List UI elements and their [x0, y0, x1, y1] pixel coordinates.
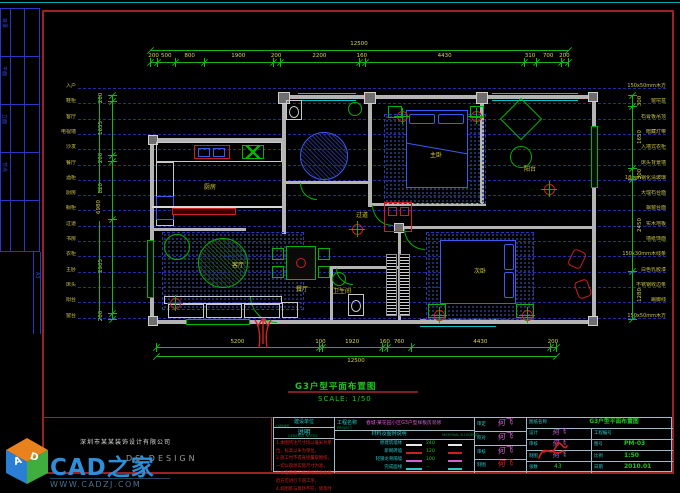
plan-title-underline [288, 391, 418, 393]
sprinkler-icon [434, 310, 445, 321]
sig-label: 审定 [477, 422, 495, 428]
dim-ext [273, 58, 274, 67]
dim-value: 2200 [299, 53, 339, 59]
room-label: 阳台 [524, 166, 536, 173]
dim-value: 4430 [460, 339, 500, 345]
legend-swatch [406, 452, 422, 454]
dining-chair [272, 266, 284, 278]
sig-label: 审核 [477, 450, 495, 456]
drawing-frame [42, 10, 674, 474]
dim-ext [524, 58, 525, 67]
cadzj-logo[interactable]: A D CAD之家 WWW.CADZJ.COM [6, 434, 206, 492]
legend-swatch [448, 444, 462, 446]
info-label: 日期 [594, 465, 622, 471]
projection-line [78, 134, 666, 135]
sprinkler-icon [522, 310, 533, 321]
legend-swatch [448, 460, 462, 462]
info-value: 2010.01 [624, 464, 670, 470]
window [186, 319, 250, 325]
left-table-line [24, 8, 25, 252]
dining-chair [318, 266, 330, 278]
dim-ext [628, 319, 637, 320]
room-label: 主卧 [430, 152, 442, 159]
sofa-seat [206, 304, 242, 318]
sig-label: 校对 [477, 436, 495, 442]
sprinkler-icon [544, 184, 555, 195]
legend-value: -- [426, 465, 444, 471]
top-rule-line [0, 2, 680, 3]
left-index-label: 目录 [1, 18, 8, 28]
dim-value: 1650 [637, 125, 643, 149]
projection-label-right: 入墙式衣柜 [596, 144, 666, 151]
projection-label-right: 床头背景墙 [596, 160, 666, 167]
projection-label-right: 150x30mm木线条 [596, 251, 666, 258]
dim-line [632, 95, 633, 319]
dining-chair [272, 248, 284, 260]
info-label: 张数 [529, 465, 549, 471]
drawing-name-value: G3户型平面布置图 [556, 419, 672, 425]
column-pier [588, 316, 598, 326]
legend-swatch [448, 468, 462, 470]
pillow [438, 114, 464, 124]
dim-value: 160 [342, 53, 382, 59]
cad-drawing-canvas: 目录平面立面节点A3 入户150x50mm木方鞋柜窗帘盒客厅石膏板吊顶电视墙暗藏… [0, 0, 680, 493]
projection-label-left: 入户 [42, 83, 76, 90]
projection-label-right: 窗帘盒 [596, 98, 666, 105]
window [591, 126, 598, 188]
notes-sub: GENERAL NOTES [288, 434, 317, 438]
basin [332, 272, 346, 286]
dim-value: 300 [637, 89, 643, 113]
wall [368, 95, 372, 207]
projection-label-left: 酒柜 [42, 175, 76, 182]
info-label: 工程编号 [594, 431, 622, 437]
drawing-name-label: 图纸名称 [529, 420, 547, 426]
dim-ext [628, 179, 637, 180]
tv-cabinet [172, 208, 236, 215]
logo-website[interactable]: WWW.CADZJ.COM [50, 478, 170, 489]
column-pier [364, 92, 376, 104]
dim-ext [157, 58, 158, 67]
window [492, 93, 578, 101]
projection-label-left: 窗台 [42, 313, 76, 320]
signature: 何飞 [497, 433, 514, 441]
projection-label-left: 过道 [42, 221, 76, 228]
column-pier [588, 92, 598, 102]
legend-name: 新砌砖墙 [336, 449, 402, 455]
dim-value: 1900 [218, 53, 258, 59]
left-strip-label: A3 [34, 272, 40, 279]
dim-ext [365, 58, 366, 67]
entry-arrow-icon [250, 312, 276, 350]
dim-ext [628, 271, 637, 272]
room-label: 餐厅 [296, 286, 308, 293]
legend-value: 100 [426, 457, 444, 463]
sig-label: 制图 [477, 463, 495, 469]
left-strip-line [40, 252, 41, 334]
titleblock-left-rule [271, 417, 272, 471]
note-line: 2.施工时不得直接量取图纸，一切以现场实际尺寸为准。 [276, 455, 332, 470]
side-table [282, 302, 298, 318]
dim-total-line [150, 50, 568, 51]
room-label: 客厅 [232, 262, 244, 269]
projection-label-left: 沙发 [42, 144, 76, 151]
logo-text: CAD之家 [50, 448, 155, 482]
projection-label-right: 墙纸饰面 [596, 236, 666, 243]
column-pier [476, 92, 488, 104]
round-bathtub [300, 132, 348, 180]
dim-ext [108, 101, 117, 102]
dim-value: 800 [170, 53, 210, 59]
legend-value: 120 [426, 449, 444, 455]
projection-label-left: 餐厅 [42, 160, 76, 167]
left-table-line [10, 8, 11, 252]
projection-label-right: 飘窗台面 [596, 205, 666, 212]
dim-ext [204, 58, 205, 67]
legend-name: 原建筑墙体 [336, 441, 402, 447]
left-index-label: 平面 [1, 66, 8, 76]
projection-label-right: 不锈钢收边条 [596, 282, 666, 289]
signature: 何飞 [497, 419, 514, 427]
dim-value: 760 [379, 339, 419, 345]
legend-swatch [448, 452, 462, 454]
stove-burner [198, 148, 210, 157]
projection-label-left: 客厅 [42, 114, 76, 121]
toilet-bowl [289, 106, 299, 118]
projection-label-right: 暗藏灯带 [596, 129, 666, 136]
pillow [504, 272, 514, 298]
dim-total-line [156, 356, 556, 357]
washer-drum [388, 207, 397, 216]
projection-label-right: 踢脚线 [596, 297, 666, 304]
legend-name: 轻钢龙骨隔墙 [336, 457, 402, 463]
red-signature [536, 438, 570, 464]
wall [150, 228, 246, 231]
dim-value: 300 [637, 162, 643, 186]
dim-value: 200 [533, 339, 573, 345]
stove-burner [213, 148, 225, 157]
kitchen-sink [242, 145, 264, 159]
projection-label-left: 阳台 [42, 297, 76, 304]
projection-label-left: 电视墙 [42, 129, 76, 136]
pillow [409, 114, 435, 124]
legend-swatch [406, 460, 422, 462]
project-sub: PROJECT [337, 426, 352, 430]
toilet-bowl [351, 300, 361, 312]
sprinkler-icon [170, 298, 181, 309]
projection-label-left: 床头 [42, 282, 76, 289]
client-sub: OWNER [276, 424, 289, 428]
dim-ext [108, 95, 117, 96]
dim-ext [108, 155, 117, 156]
dim-value: 1280 [637, 283, 643, 307]
dim-ext [108, 319, 117, 320]
projection-label-left: 主卧 [42, 267, 76, 274]
washer-drum [400, 207, 409, 216]
dim-ext [359, 58, 360, 67]
room-label: 过道 [356, 212, 368, 219]
info-value: PM-03 [624, 441, 670, 447]
signature: 何飞 [497, 460, 514, 468]
dim-ext [628, 106, 637, 107]
dim-ext [280, 58, 281, 67]
legend-title: 材料及图例说明 [334, 431, 444, 437]
dim-line [112, 95, 113, 319]
dim-ext [108, 313, 117, 314]
balcony-chair [510, 146, 532, 168]
left-index-label: 节点 [1, 162, 8, 172]
dim-total: 12500 [332, 358, 380, 364]
sprinkler-icon [397, 111, 408, 122]
info-label: 设计 [529, 431, 549, 437]
basin [348, 102, 362, 116]
dim-total: 12500 [335, 41, 383, 47]
legend-value: 240 [426, 441, 444, 447]
dim-value: 2450 [637, 213, 643, 237]
dim-ext [628, 168, 637, 169]
wall [398, 226, 594, 229]
dim-ext [536, 58, 537, 67]
projection-label-right: 实木地板 [596, 221, 666, 228]
left-index-table [0, 8, 40, 252]
projection-line [78, 318, 666, 319]
projection-label-left: 衣柜 [42, 251, 76, 258]
wall [282, 181, 372, 184]
sprinkler-icon [471, 111, 482, 122]
pillow [504, 244, 514, 270]
dim-value: 200 [544, 53, 584, 59]
projection-label-right: 石膏板吊顶 [596, 114, 666, 121]
signature: 何飞 [497, 446, 514, 454]
legend-name: 完成面线 [336, 465, 402, 471]
dim-total: 6980 [96, 193, 102, 221]
wardrobe-louver [399, 254, 410, 316]
dim-value: 200 [256, 53, 296, 59]
title-block: 建设单位 OWNER 说明 GENERAL NOTES 1.本图所注尺寸均以毫米… [273, 417, 672, 472]
projection-line [78, 88, 666, 89]
signature: 何飞 [552, 428, 567, 436]
left-strip-line [33, 252, 34, 334]
dining-chair [318, 248, 330, 260]
dim-ext [568, 58, 569, 67]
projection-label-right: 150x50mm木方 [596, 83, 666, 90]
table-centerpiece [296, 258, 306, 268]
wardrobe-louver [386, 254, 397, 316]
left-table-line [0, 200, 40, 201]
window [420, 319, 496, 327]
window [298, 93, 356, 101]
projection-label-left: 橱柜 [42, 205, 76, 212]
left-table-line [0, 104, 40, 105]
note-line: 4.如图纸与现场不符，请及时与设计师联系解决。 [276, 486, 332, 493]
projection-label-left: 厨房 [42, 190, 76, 197]
dim-ext [561, 58, 562, 67]
room-label: 次卧 [474, 268, 486, 275]
project-name: 春城·某花园小区G3户型样板房装修 [366, 421, 472, 427]
info-value: 43 [554, 464, 562, 470]
info-label: 比例 [594, 454, 622, 460]
left-index-label: 立面 [1, 114, 8, 124]
legend-swatch [406, 468, 422, 470]
sprinkler-icon [352, 224, 363, 235]
dim-ext [156, 343, 157, 352]
projection-label-left: 鞋柜 [42, 98, 76, 105]
info-label: 图号 [594, 442, 622, 448]
projection-label-left: 书房 [42, 236, 76, 243]
dim-ext [108, 161, 117, 162]
dim-ext [628, 95, 637, 96]
room-label: 卫生间 [333, 288, 351, 295]
left-table-line [0, 56, 40, 57]
dim-line [156, 347, 556, 348]
construction-notes: 1.本图所注尺寸均以毫米为单位，标高以米为单位。2.施工时不得直接量取图纸，一切… [276, 440, 332, 493]
projection-label-right: 大理石台面 [596, 190, 666, 197]
plan-scale: SCALE: 1/50 [318, 395, 372, 403]
note-line: 3.水电隐蔽工程须经验收合格后方可进行下道工序。 [276, 470, 332, 485]
dim-ext [175, 58, 176, 67]
armchair [164, 234, 190, 260]
left-table-line [0, 152, 40, 153]
logo-cube-icon: A D [6, 438, 48, 484]
dim-ext [108, 219, 117, 220]
legend-sub: MATERIAL & LEGEND [442, 433, 479, 437]
note-line: 1.本图所注尺寸均以毫米为单位，标高以米为单位。 [276, 440, 332, 455]
room-label: 厨房 [204, 184, 216, 191]
legend-swatch [406, 444, 422, 446]
dim-value: 4430 [425, 53, 465, 59]
column-pier [148, 316, 158, 326]
info-value: 1:50 [624, 453, 670, 459]
dim-ext [150, 58, 151, 67]
window [147, 240, 154, 298]
projection-line [78, 119, 666, 120]
